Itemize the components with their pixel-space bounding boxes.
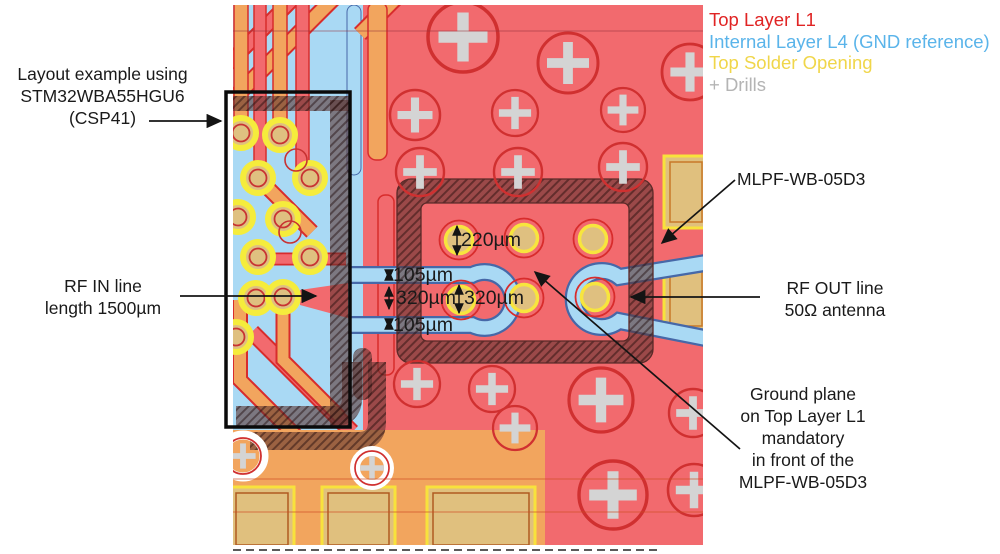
layer-legend: Top Layer L1 Internal Layer L4 (GND refe… — [709, 9, 990, 95]
legend-drills: + Drills — [709, 74, 990, 96]
pcb-image — [221, 0, 720, 549]
ground-plane-line: Ground plane — [712, 383, 894, 405]
ground-plane-annotation: Ground plane on Top Layer L1 mandatory i… — [712, 383, 894, 493]
via — [669, 389, 717, 437]
dim-label-trace-width: 320µm — [396, 288, 456, 308]
ground-plane-line: on Top Layer L1 — [712, 405, 894, 427]
rf-in-annotation-line: length 1500µm — [28, 297, 178, 319]
ground-plane-line: mandatory — [712, 427, 894, 449]
chip-annotation-line: STM32WBA55HGU6 — [0, 85, 205, 107]
via — [538, 33, 598, 93]
dim-label-gap-bottom: 105µm — [393, 315, 453, 335]
pcb-layout-figure: Top Layer L1 Internal Layer L4 (GND refe… — [0, 0, 1000, 554]
legend-top-layer: Top Layer L1 — [709, 9, 990, 31]
legend-solder-opening: Top Solder Opening — [709, 52, 990, 74]
chip-annotation-line: Layout example using — [0, 63, 205, 85]
via — [579, 461, 647, 529]
dim-label-gap-top: 105µm — [393, 265, 453, 285]
filter-annotation-label: MLPF-WB-05D3 — [737, 168, 865, 190]
dim-label-pad-pitch: 320µm — [464, 288, 524, 308]
chip-annotation: Layout example using STM32WBA55HGU6 (CSP… — [0, 63, 205, 129]
chip-annotation-line: (CSP41) — [0, 107, 205, 129]
ground-plane-line: in front of the — [712, 449, 894, 471]
legend-internal-layer: Internal Layer L4 (GND reference) — [709, 31, 990, 53]
filter-annotation: MLPF-WB-05D3 — [737, 168, 865, 190]
dim-label-pad-opening: 220µm — [461, 230, 521, 250]
rf-out-annotation-line: RF OUT line — [760, 277, 910, 299]
via — [390, 90, 440, 140]
rf-in-annotation: RF IN line length 1500µm — [28, 275, 178, 319]
via — [428, 2, 498, 72]
rf-out-annotation: RF OUT line 50Ω antenna — [760, 277, 910, 321]
rf-in-annotation-line: RF IN line — [28, 275, 178, 297]
ground-plane-line: MLPF-WB-05D3 — [712, 471, 894, 493]
via — [355, 451, 389, 485]
rf-out-annotation-line: 50Ω antenna — [760, 299, 910, 321]
